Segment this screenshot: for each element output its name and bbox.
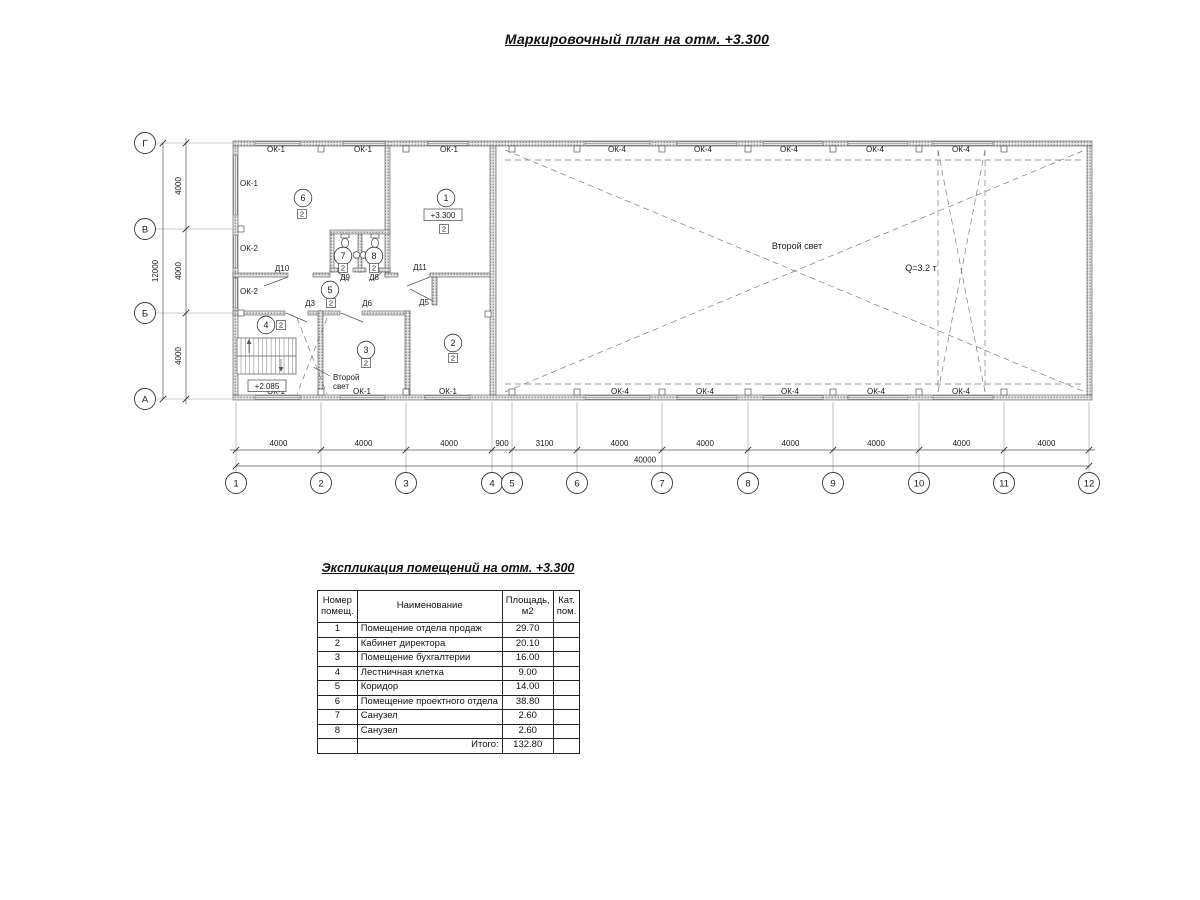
col-header-name: Наименование xyxy=(357,591,502,623)
row-num: 2 xyxy=(318,637,358,652)
table-total-row: Итого: 132.80 xyxy=(318,739,580,754)
grid-bubble-number: 5 xyxy=(509,478,514,489)
door-label: Д8 xyxy=(369,273,379,282)
grid-bubble-number: 9 xyxy=(830,478,835,489)
window-label: ОК-4 xyxy=(952,387,971,396)
crane-cross-2 xyxy=(938,150,985,392)
sink-icon xyxy=(353,252,360,259)
h-dim-value: 4000 xyxy=(867,439,885,448)
row-cat xyxy=(553,666,580,681)
door-d11-leaf xyxy=(407,277,430,286)
toilet-icon xyxy=(371,238,378,247)
h-dim-value: 4000 xyxy=(782,439,800,448)
axis-bubble-letter: В xyxy=(142,224,148,235)
explication-title: Экспликация помещений на отм. +3.300 xyxy=(298,561,598,575)
door-d10-leaf xyxy=(264,277,288,286)
grid-bubble-number: 6 xyxy=(574,478,579,489)
room-number: 6 xyxy=(300,193,305,203)
pier-mark xyxy=(1001,146,1007,152)
grid-bubble-number: 11 xyxy=(999,478,1009,489)
elevation-value: +3.300 xyxy=(431,211,456,220)
table-row: 2Кабинет директора20.10 xyxy=(318,637,580,652)
grid-bubble-number: 4 xyxy=(489,478,494,489)
grid-bubble-number: 12 xyxy=(1084,478,1095,489)
pier-mark xyxy=(745,146,751,152)
row-name: Лестничная клетка xyxy=(357,666,502,681)
h-dim-value: 900 xyxy=(495,439,509,448)
pier-mark xyxy=(403,146,409,152)
row-cat xyxy=(553,724,580,739)
table-row: 4Лестничная клетка9.00 xyxy=(318,666,580,681)
room-number: 3 xyxy=(363,345,368,355)
row-num: 4 xyxy=(318,666,358,681)
pier-mark xyxy=(509,389,515,395)
grid-bubble-number: 3 xyxy=(403,478,408,489)
wall-corridor-bot-b xyxy=(308,311,340,315)
v-total-value: 12000 xyxy=(151,259,160,282)
pier-mark xyxy=(318,389,324,395)
table-row: 5Коридор14.00 xyxy=(318,681,580,696)
window-label: ОК-2 xyxy=(240,244,259,253)
wall-room3-room2 xyxy=(405,311,410,395)
axis-bubble-letter: Г xyxy=(142,138,147,149)
room-number: 7 xyxy=(340,251,345,261)
annotation-label: Q=3.2 т xyxy=(905,263,936,273)
row-name: Кабинет директора xyxy=(357,637,502,652)
row-cat xyxy=(553,637,580,652)
window-label: ОК-4 xyxy=(696,387,715,396)
row-name: Помещение бухгалтерии xyxy=(357,652,502,667)
pier-mark xyxy=(574,146,580,152)
pier-mark xyxy=(238,226,244,232)
room-category-value: 2 xyxy=(364,359,368,368)
door-label: Д10 xyxy=(275,264,290,273)
row-num: 6 xyxy=(318,695,358,710)
floor-plan-svg: 4000400040009003100400040004000400040004… xyxy=(0,0,1200,540)
grid-bubble-number: 10 xyxy=(914,478,925,489)
door-label: Д6 xyxy=(362,299,372,308)
annotation-label: Второй свет xyxy=(772,241,822,251)
wall-wc-stub1 xyxy=(330,268,338,272)
h-dim-value: 4000 xyxy=(440,439,458,448)
wall-corridor-bot-c xyxy=(362,311,410,315)
explication-table: Номер помещ. Наименование Площадь, м2 Ка… xyxy=(317,590,580,754)
pier-mark xyxy=(916,389,922,395)
table-row: 1Помещение отдела продаж29.70 xyxy=(318,623,580,638)
pier-mark xyxy=(1001,389,1007,395)
wall-right xyxy=(1087,146,1092,395)
pier-mark xyxy=(485,311,491,317)
window-label: ОК-1 xyxy=(353,387,372,396)
h-dim-value: 4000 xyxy=(355,439,373,448)
pier-mark xyxy=(403,389,409,395)
pier-mark xyxy=(318,146,324,152)
door-label: Д5 xyxy=(419,298,429,307)
pier-mark xyxy=(830,389,836,395)
wall-grid4-partition xyxy=(490,146,496,395)
h-dim-value: 4000 xyxy=(1038,439,1056,448)
door-label: Д9 xyxy=(340,273,350,282)
wall-corridor-top-a xyxy=(233,273,288,277)
h-dim-value: 4000 xyxy=(953,439,971,448)
table-row: 3Помещение бухгалтерии16.00 xyxy=(318,652,580,667)
window-label: ОК-4 xyxy=(866,145,885,154)
row-name: Санузел xyxy=(357,710,502,725)
plan-text-labels: ОК-1ОК-1ОК-1ОК-4ОК-4ОК-4ОК-4ОК-4ОК-1ОК-1… xyxy=(240,145,971,396)
col-header-cat: Кат. пом. xyxy=(553,591,580,623)
v-dim-value: 4000 xyxy=(174,347,183,365)
wall-room6-room1 xyxy=(385,146,390,277)
row-name: Помещение отдела продаж xyxy=(357,623,502,638)
elevation-value: +2.085 xyxy=(255,382,280,391)
total-label: Итого: xyxy=(357,739,502,754)
row-cat xyxy=(553,623,580,638)
h-dim-value: 4000 xyxy=(270,439,288,448)
row-num: 1 xyxy=(318,623,358,638)
grid-bubble-number: 8 xyxy=(745,478,750,489)
wall-wc-left xyxy=(330,234,334,272)
window-label: ОК-4 xyxy=(781,387,800,396)
h-dim-value: 4000 xyxy=(611,439,629,448)
row-num: 5 xyxy=(318,681,358,696)
wall-wc-stub3 xyxy=(379,268,390,272)
pier-mark xyxy=(830,146,836,152)
total-empty-cell xyxy=(318,739,358,754)
table-header-row: Номер помещ. Наименование Площадь, м2 Ка… xyxy=(318,591,580,623)
pier-mark xyxy=(659,146,665,152)
row-area: 29.70 xyxy=(502,623,553,638)
wall-room1-bottom-b xyxy=(430,273,490,277)
h-dim-value: 3100 xyxy=(536,439,554,448)
grid-bubble-number: 2 xyxy=(318,478,323,489)
door-label: Д11 xyxy=(413,263,427,272)
window-label: ОК-4 xyxy=(867,387,886,396)
col-header-area: Площадь, м2 xyxy=(502,591,553,623)
h-dim-value: 4000 xyxy=(696,439,714,448)
floor-plan: 4000400040009003100400040004000400040004… xyxy=(0,0,1200,540)
pier-mark xyxy=(916,146,922,152)
row-name: Коридор xyxy=(357,681,502,696)
door-d3-leaf xyxy=(286,313,307,322)
pier-mark xyxy=(659,389,665,395)
window-label: ОК-1 xyxy=(439,387,458,396)
row-name: Помещение проектного отдела xyxy=(357,695,502,710)
row-area: 38.80 xyxy=(502,695,553,710)
pier-mark xyxy=(745,389,751,395)
row-area: 16.00 xyxy=(502,652,553,667)
pier-mark xyxy=(574,389,580,395)
window-label: ОК-1 xyxy=(354,145,373,154)
staircase xyxy=(237,338,296,374)
window-label: ОК-4 xyxy=(780,145,799,154)
table-row: 6Помещение проектного отдела38.80 xyxy=(318,695,580,710)
room-category-value: 2 xyxy=(442,225,446,234)
total-cat-cell xyxy=(553,739,580,754)
row-area: 14.00 xyxy=(502,681,553,696)
door-label: Д3 xyxy=(305,299,315,308)
row-area: 2.60 xyxy=(502,710,553,725)
room-category-value: 2 xyxy=(341,264,345,273)
grid-bubble-number: 7 xyxy=(659,478,664,489)
window-label: ОК-4 xyxy=(694,145,713,154)
room-number: 2 xyxy=(450,338,455,348)
row-num: 7 xyxy=(318,710,358,725)
annotation-label: Второй xyxy=(333,373,359,382)
toilet-icon xyxy=(341,238,348,247)
window-label: ОК-1 xyxy=(267,145,286,154)
window-label: ОК-1 xyxy=(440,145,459,154)
room-number: 5 xyxy=(327,285,332,295)
window-label: ОК-4 xyxy=(611,387,630,396)
window-label: ОК-4 xyxy=(608,145,627,154)
dimension-lines: 4000400040009003100400040004000400040004… xyxy=(151,138,1095,473)
door-d6-leaf xyxy=(341,313,363,322)
row-cat xyxy=(553,710,580,725)
row-cat xyxy=(553,695,580,710)
wall-room1-bottom-a xyxy=(385,273,398,277)
row-area: 2.60 xyxy=(502,724,553,739)
v-dim-value: 4000 xyxy=(174,262,183,280)
room-number: 4 xyxy=(263,320,268,330)
wall-stair-room3 xyxy=(318,311,323,395)
total-value: 132.80 xyxy=(502,739,553,754)
room-number: 1 xyxy=(443,193,448,203)
row-num: 3 xyxy=(318,652,358,667)
grid-bubble-number: 1 xyxy=(233,478,238,489)
axis-bubble-letter: А xyxy=(142,394,149,405)
table-row: 7Санузел2.60 xyxy=(318,710,580,725)
pier-mark xyxy=(238,310,244,316)
window-label: ОК-2 xyxy=(240,287,259,296)
room-category-value: 2 xyxy=(279,321,283,330)
toilet-icon xyxy=(371,234,379,238)
v-dim-value: 4000 xyxy=(174,177,183,195)
row-cat xyxy=(553,652,580,667)
wall-corridor-top-b xyxy=(313,273,330,277)
toilet-icon xyxy=(341,234,349,238)
annotation-label: свет xyxy=(333,382,349,391)
h-total-value: 40000 xyxy=(634,456,657,465)
col-header-num: Номер помещ. xyxy=(318,591,358,623)
pier-mark xyxy=(509,146,515,152)
row-num: 8 xyxy=(318,724,358,739)
wall-wc-top xyxy=(330,230,390,234)
room-category-value: 2 xyxy=(329,299,333,308)
room-category-value: 2 xyxy=(372,264,376,273)
row-area: 20.10 xyxy=(502,637,553,652)
window-label: ОК-1 xyxy=(240,179,259,188)
dashed-lines xyxy=(297,150,1085,394)
row-cat xyxy=(553,681,580,696)
table-row: 8Санузел2.60 xyxy=(318,724,580,739)
wall-wc-stub2 xyxy=(353,268,366,272)
room-category-value: 2 xyxy=(300,210,304,219)
row-name: Санузел xyxy=(357,724,502,739)
row-area: 9.00 xyxy=(502,666,553,681)
window-label: ОК-4 xyxy=(952,145,971,154)
axis-bubble-letter: Б xyxy=(142,308,148,319)
room-category-value: 2 xyxy=(451,354,455,363)
room-number: 8 xyxy=(371,251,376,261)
